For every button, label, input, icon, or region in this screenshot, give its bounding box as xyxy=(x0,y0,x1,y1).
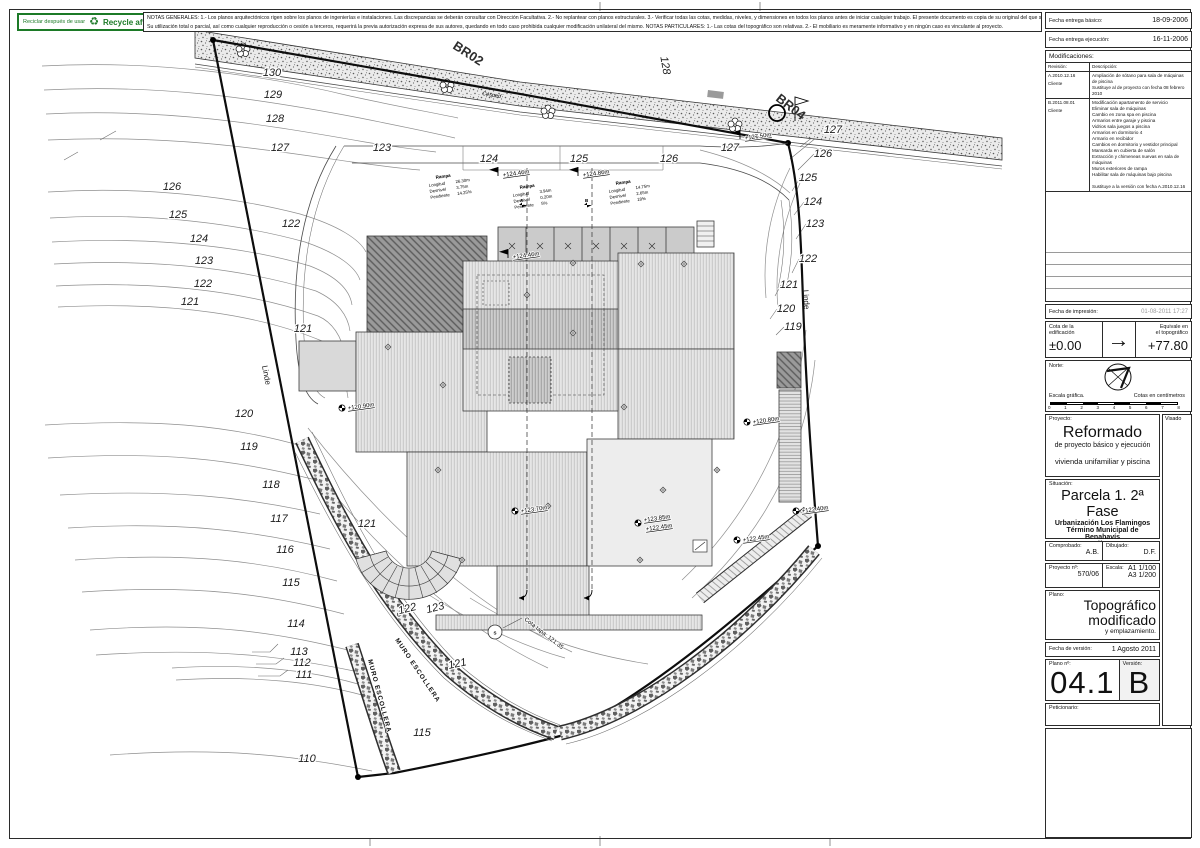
fecha-version-label: Fecha de versión: xyxy=(1049,646,1092,652)
svg-text:120: 120 xyxy=(777,303,796,315)
empty-revision-row xyxy=(1046,265,1191,277)
svg-text:+124.46m: +124.46m xyxy=(502,169,529,179)
svg-text:110: 110 xyxy=(298,753,316,765)
plano-box: Plano: Topográfico modificado y emplazam… xyxy=(1045,590,1160,640)
empty-revision-row xyxy=(1046,289,1191,301)
escala-a1-value: A1 1/100 xyxy=(1128,565,1156,572)
fecha-impresion-box: Fecha de impresión: 01-08-2011 17:27 xyxy=(1045,304,1192,319)
situacion-box: Situación: Parcela 1. 2ª Fase Urbanizaci… xyxy=(1045,479,1160,539)
notes-line-1: NOTAS GENERALES: 1.- Los planos arquitec… xyxy=(147,14,1038,23)
proyecto-subtitle: vivienda unifamiliar y piscina xyxy=(1049,457,1156,466)
svg-text:122: 122 xyxy=(282,218,300,230)
svg-text:115: 115 xyxy=(282,577,300,589)
situacion-subtitle: Término Municipal de Benahavís xyxy=(1049,527,1156,541)
revision-author: Cliente xyxy=(1048,81,1087,86)
proyecto-subtitle: de proyecto básico y ejecución xyxy=(1049,442,1156,449)
empty-bottom-box xyxy=(1045,728,1192,838)
peticionario-label: Peticionario: xyxy=(1049,705,1156,711)
svg-text:119: 119 xyxy=(784,321,802,333)
svg-text:124: 124 xyxy=(804,196,822,208)
empty-revision-row xyxy=(1046,253,1191,265)
linde-right-label: Linde xyxy=(801,290,811,311)
version-value: B xyxy=(1123,667,1156,699)
svg-text:126: 126 xyxy=(814,148,833,160)
section-b-label: B xyxy=(585,198,589,203)
dibujado-value: D.F. xyxy=(1106,549,1156,556)
revision-description: Ampliación de sótano para sala de máquin… xyxy=(1090,72,1191,98)
svg-text:121: 121 xyxy=(780,279,798,291)
svg-text:129: 129 xyxy=(264,89,282,101)
empty-revision-row xyxy=(1046,277,1191,289)
cota-value: ±0.00 xyxy=(1049,338,1099,353)
svg-text:18%: 18% xyxy=(637,196,646,202)
svg-text:127: 127 xyxy=(824,124,843,136)
stair-top-right xyxy=(697,221,714,247)
notes-line-2: Su utilización total o parcial, así como… xyxy=(147,23,1038,32)
recycle-icon: ♻ xyxy=(89,17,99,27)
recycle-note-es: Reciclar después de usar xyxy=(23,19,85,25)
plano-num-value: 04.1 xyxy=(1049,667,1116,699)
svg-text:+120.80m: +120.80m xyxy=(752,416,779,426)
fecha-impresion-label: Fecha de impresión: xyxy=(1049,309,1098,315)
svg-text:128: 128 xyxy=(266,113,285,125)
drawing-sheet: A B S Cota tapa: 121.35 BR02 BR04 Césped… xyxy=(0,0,1200,848)
svg-text:130: 130 xyxy=(263,67,282,79)
comprobado-dibujado-row: Comprobado: A.B. Dibujado: D.F. xyxy=(1045,541,1160,561)
fecha-ejecucion-label: Fecha entrega ejecución: xyxy=(1049,37,1110,43)
svg-text:125: 125 xyxy=(570,153,589,165)
fecha-ejecucion-value: 16-11-2006 xyxy=(1153,36,1188,43)
modificaciones-table: Modificaciones: Revisión: Descripción: A… xyxy=(1045,50,1192,302)
svg-text:0.20m: 0.20m xyxy=(540,193,553,200)
svg-text:112: 112 xyxy=(293,657,311,669)
svg-text:5%: 5% xyxy=(541,200,548,206)
svg-text:118: 118 xyxy=(262,479,280,491)
num-escala-row: Proyecto nº: 570/06 Escala: A1 1/100 A3 … xyxy=(1045,563,1160,588)
svg-text:121: 121 xyxy=(181,296,199,308)
svg-text:125: 125 xyxy=(169,209,188,221)
road-label-br02: BR02 xyxy=(450,38,486,69)
fecha-version-box: Fecha de versión: 1 Agosto 2011 xyxy=(1045,642,1160,657)
fecha-basico-label: Fecha entrega básico: xyxy=(1049,18,1102,24)
comprobado-value: A.B. xyxy=(1049,549,1099,556)
garden-stair xyxy=(497,566,589,616)
svg-text:126: 126 xyxy=(660,153,679,165)
fecha-basico-value: 18-09-2006 xyxy=(1152,17,1188,24)
equivalence-arrow-icon: → xyxy=(1102,322,1136,357)
fecha-impresion-value: 01-08-2011 17:27 xyxy=(1141,309,1188,315)
svg-text:125: 125 xyxy=(799,172,818,184)
revision-description: Modificación apartamento de servicio Eli… xyxy=(1090,99,1191,191)
descripcion-col-header: Descripción: xyxy=(1090,63,1191,71)
proyecto-num-value: 570/06 xyxy=(1049,571,1099,578)
visado-column: Visado xyxy=(1162,414,1192,726)
cotas-cm-label: Cotas en centímetros xyxy=(1134,393,1185,399)
svg-text:115: 115 xyxy=(413,727,431,739)
revision-id: B.2011.08.01 xyxy=(1048,100,1087,105)
revision-row: A.2010.12.16 Cliente Ampliación de sótan… xyxy=(1046,72,1191,99)
linde-left-label: Linde xyxy=(260,365,273,386)
plano-title: Topográfico xyxy=(1049,598,1156,613)
svg-text:Rampa: Rampa xyxy=(615,179,631,186)
walkway xyxy=(436,615,702,630)
situacion-label: Situación: xyxy=(1049,481,1156,487)
svg-text:14.75m: 14.75m xyxy=(635,183,650,190)
svg-text:123: 123 xyxy=(806,218,825,230)
escala-a3-value: A3 1/200 xyxy=(1106,572,1156,579)
visado-label: Visado xyxy=(1165,416,1181,422)
revision-id: A.2010.12.16 xyxy=(1048,73,1087,78)
svg-text:111: 111 xyxy=(296,669,313,681)
proyecto-box: Proyecto: Reformado de proyecto básico y… xyxy=(1045,414,1160,477)
svg-text:S: S xyxy=(493,631,496,636)
fecha-version-value: 1 Agosto 2011 xyxy=(1112,646,1156,653)
svg-text:123: 123 xyxy=(425,600,447,616)
building xyxy=(299,221,801,630)
svg-text:+124.86m: +124.86m xyxy=(582,169,609,179)
north-compass-icon xyxy=(1098,362,1138,392)
situacion-subtitle: Urbanización Los Flamingos xyxy=(1049,520,1156,527)
svg-text:121: 121 xyxy=(358,518,376,530)
svg-text:128: 128 xyxy=(657,55,672,76)
ramp-table: Rampa Longitud3.94m Desnivel0.20m Pendie… xyxy=(511,181,553,210)
modificaciones-header: Modificaciones: xyxy=(1046,51,1191,63)
svg-text:127: 127 xyxy=(721,142,740,154)
cota-label: edificación xyxy=(1049,330,1099,336)
situacion-title: Parcela 1. 2ª Fase xyxy=(1049,488,1156,520)
site-plan-canvas: A B S Cota tapa: 121.35 BR02 BR04 Césped… xyxy=(0,0,1043,848)
escala-grafica-label: Escala gráfica. xyxy=(1049,393,1084,399)
ramp-table: Rampa Longitud26.30m Desnivel3.75m Pendi… xyxy=(427,170,472,200)
ramp-table: Rampa Longitud14.75m Desnivel2.65m Pendi… xyxy=(607,176,652,206)
svg-text:123: 123 xyxy=(195,255,214,267)
fecha-basico-box: Fecha entrega básico: 18-09-2006 xyxy=(1045,12,1192,29)
svg-text:127: 127 xyxy=(271,142,290,154)
svg-text:116: 116 xyxy=(276,544,294,556)
plano-subtitle: y emplazamiento. xyxy=(1049,628,1156,635)
svg-text:+127.50m: +127.50m xyxy=(744,132,771,142)
general-notes: NOTAS GENERALES: 1.- Los planos arquitec… xyxy=(143,12,1042,32)
proyecto-label: Proyecto: xyxy=(1049,416,1156,422)
proyecto-title: Reformado xyxy=(1049,424,1156,442)
cota-box: Cota de la edificación ±0.00 → Equivale … xyxy=(1045,321,1192,358)
revision-author: Cliente xyxy=(1048,108,1087,113)
svg-text:26.30m: 26.30m xyxy=(455,177,470,184)
project-block: Proyecto: Reformado de proyecto básico y… xyxy=(1045,414,1192,726)
svg-text:124: 124 xyxy=(190,233,208,245)
road xyxy=(195,30,1002,169)
revision-col-header: Revisión: xyxy=(1046,63,1090,71)
equivale-value: +77.80 xyxy=(1139,338,1189,353)
peticionario-box: Peticionario: xyxy=(1045,703,1160,726)
svg-text:117: 117 xyxy=(270,513,288,525)
equivale-label: el topográfico xyxy=(1139,330,1189,336)
title-block: Fecha entrega básico: 18-09-2006 Fecha e… xyxy=(1045,12,1192,838)
svg-text:2.65m: 2.65m xyxy=(636,189,649,196)
svg-text:126: 126 xyxy=(163,181,182,193)
side-stair xyxy=(779,390,801,502)
svg-text:14.25%: 14.25% xyxy=(457,189,472,196)
svg-text:114: 114 xyxy=(287,618,305,630)
escala-label: Escala: xyxy=(1106,565,1124,572)
svg-text:Rampa: Rampa xyxy=(435,173,451,180)
svg-text:124: 124 xyxy=(480,153,498,165)
fecha-ejecucion-box: Fecha entrega ejecución: 16-11-2006 xyxy=(1045,31,1192,48)
norte-label: Norte: xyxy=(1049,363,1064,369)
plano-num-row: Plano nº: 04.1 Versión: B xyxy=(1045,659,1160,701)
svg-text:120: 120 xyxy=(235,408,254,420)
svg-text:122: 122 xyxy=(194,278,212,290)
svg-text:119: 119 xyxy=(240,441,258,453)
plano-title: modificado xyxy=(1049,613,1156,628)
revision-row: B.2011.08.01 Cliente Modificación aparta… xyxy=(1046,99,1191,192)
scale-tick-numbers: 01 23 45 67 8 xyxy=(1048,405,1180,410)
north-scale-box: Norte: Escala gráfica. Cotas en centímet… xyxy=(1045,360,1192,412)
empty-revision-row xyxy=(1046,241,1191,253)
svg-text:121: 121 xyxy=(294,323,312,335)
svg-text:123: 123 xyxy=(373,142,392,154)
svg-text:Rampa: Rampa xyxy=(519,183,535,190)
svg-text:122: 122 xyxy=(799,253,817,265)
